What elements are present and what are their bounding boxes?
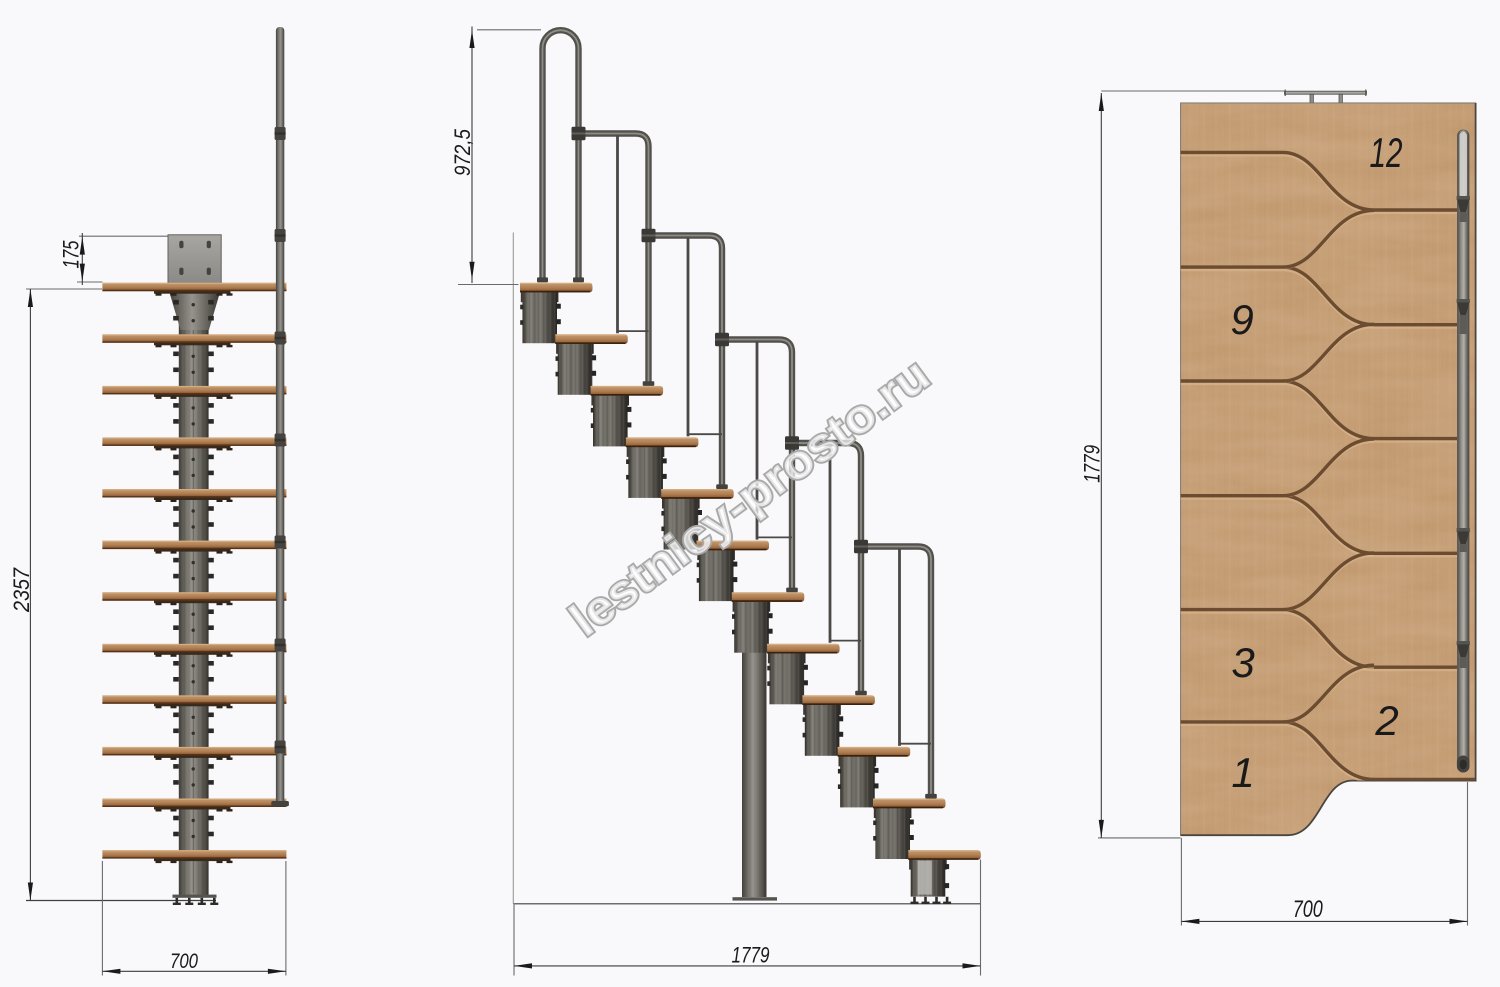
svg-text:700: 700 xyxy=(170,950,198,973)
svg-text:972,5: 972,5 xyxy=(450,128,475,176)
svg-text:3: 3 xyxy=(1231,639,1254,686)
svg-text:175: 175 xyxy=(59,240,84,269)
svg-text:12: 12 xyxy=(1370,129,1403,176)
svg-text:1: 1 xyxy=(1231,749,1254,796)
svg-text:1779: 1779 xyxy=(1080,445,1105,483)
svg-text:2357: 2357 xyxy=(9,567,34,613)
svg-text:700: 700 xyxy=(1293,896,1323,923)
svg-text:2: 2 xyxy=(1374,697,1398,744)
svg-text:9: 9 xyxy=(1230,296,1253,343)
svg-text:1779: 1779 xyxy=(732,943,770,968)
